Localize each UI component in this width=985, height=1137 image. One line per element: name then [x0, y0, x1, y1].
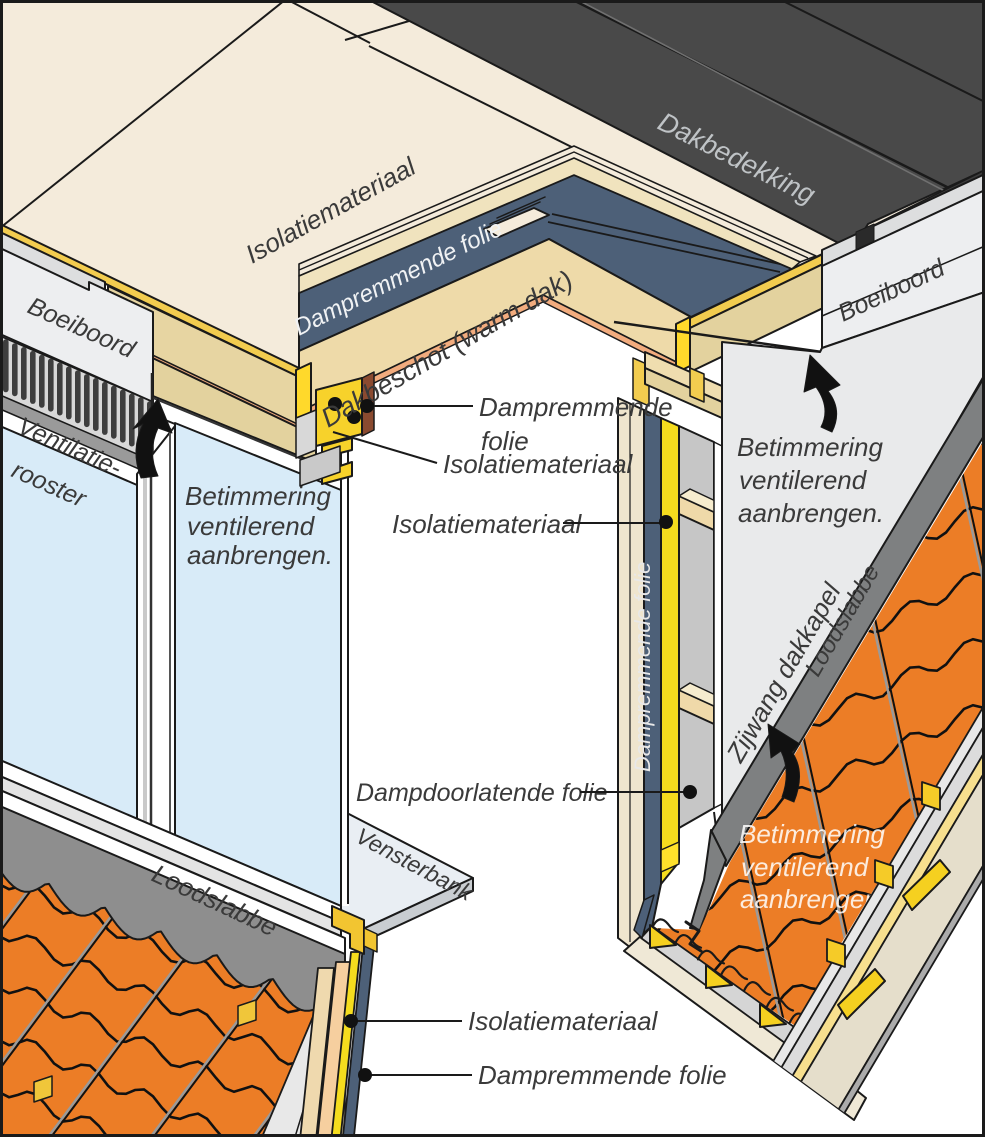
svg-text:Betimmering: Betimmering — [185, 481, 331, 511]
svg-text:Dampdoorlatende folie: Dampdoorlatende folie — [356, 779, 608, 807]
svg-text:ventilerend: ventilerend — [739, 465, 868, 495]
svg-text:Dampremmende folie: Dampremmende folie — [478, 1060, 727, 1090]
svg-text:Betimmering: Betimmering — [737, 432, 883, 462]
svg-text:aanbrengen.: aanbrengen. — [738, 498, 884, 528]
svg-text:Dampremmende: Dampremmende — [479, 392, 673, 422]
svg-text:Dampremmende folie: Dampremmende folie — [630, 562, 655, 772]
svg-text:Isolatiemateriaal: Isolatiemateriaal — [392, 509, 583, 539]
svg-text:Betimmering: Betimmering — [739, 819, 885, 849]
svg-text:Isolatiemateriaal: Isolatiemateriaal — [468, 1006, 659, 1036]
svg-text:aanbrengen.: aanbrengen. — [187, 540, 333, 570]
svg-text:ventilerend: ventilerend — [741, 852, 870, 882]
svg-text:Isolatiemateriaal: Isolatiemateriaal — [443, 449, 634, 479]
svg-text:ventilerend: ventilerend — [187, 511, 316, 541]
